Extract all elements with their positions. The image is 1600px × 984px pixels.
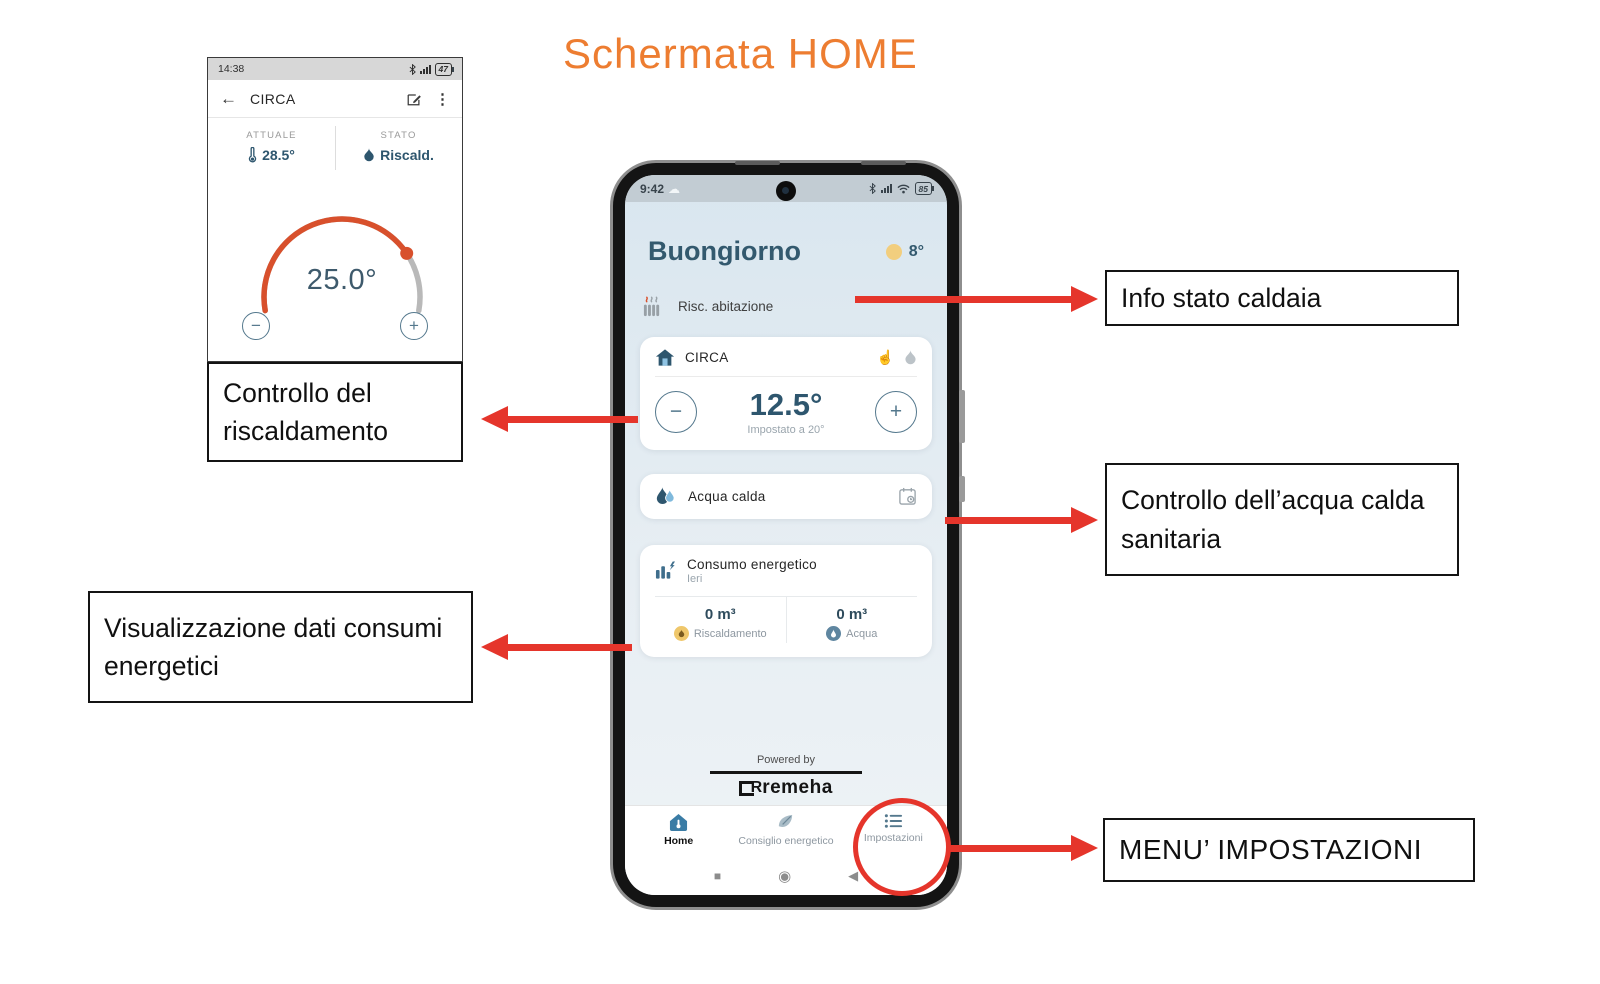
energy-water-cell: 0 m³ Acqua (786, 597, 918, 643)
flame-icon (363, 148, 375, 162)
zone-setpoint-note: Impostato a 20° (747, 424, 824, 436)
heating-consumption-label: Riscaldamento (694, 628, 767, 640)
callout-controllo-riscaldamento: Controllo del riscaldamento (207, 362, 463, 462)
current-temp-block: ATTUALE 28.5° (208, 130, 335, 163)
current-temp-value: 28.5° (262, 147, 295, 163)
callout-visualizzazione-consumi: Visualizzazione dati consumi energetici (88, 591, 473, 703)
remeha-logo: R remeha (710, 771, 862, 799)
battery-icon: 85 (915, 182, 932, 195)
heating-badge-icon (674, 626, 689, 641)
mini-status-bar: 14:38 47 (208, 58, 462, 80)
powered-by-label: Powered by (640, 754, 932, 766)
mini-header: ← CIRCA ⋮ (208, 80, 462, 118)
battery-icon: 47 (435, 63, 452, 76)
edit-icon[interactable] (406, 91, 422, 107)
nav-home[interactable]: Home (625, 813, 732, 857)
phone-mockup: 9:42 ☁ 85 Buongiorno 8° (610, 160, 962, 910)
android-back-button[interactable]: ◀ (848, 868, 858, 884)
boiler-status-label: Risc. abitazione (678, 299, 773, 314)
thermostat-detail-screenshot: 14:38 47 ← CIRCA ⋮ ATTUALE 28.5° (207, 57, 463, 362)
dial-setpoint-value: 25.0° (252, 264, 432, 297)
water-drops-icon (655, 486, 677, 507)
zone-name: CIRCA (685, 350, 729, 365)
water-consumption-label: Acqua (846, 628, 877, 640)
signal-icon (881, 184, 892, 193)
current-label: ATTUALE (208, 130, 335, 141)
decrease-temp-button[interactable]: − (655, 391, 697, 433)
android-recents-button[interactable]: ■ (714, 869, 721, 883)
arrow-menu-impostazioni (948, 835, 1098, 861)
page-title: Schermata HOME (563, 30, 918, 78)
temperature-dial[interactable] (252, 205, 432, 317)
energy-heating-cell: 0 m³ Riscaldamento (655, 597, 786, 643)
nav-energy-advice[interactable]: Consiglio energetico (732, 813, 839, 857)
mini-info-row: ATTUALE 28.5° STATO Riscald. (208, 118, 462, 169)
volume-button (959, 390, 965, 443)
status-time: 9:42 (640, 182, 664, 196)
weather-widget: 8° (886, 243, 924, 261)
bluetooth-icon (409, 64, 416, 75)
hot-water-card[interactable]: Acqua calda (640, 474, 932, 519)
state-block: STATO Riscald. (335, 130, 462, 163)
cloud-icon: ☁ (668, 182, 680, 196)
state-value: Riscald. (380, 147, 434, 163)
callout-controllo-acqua: Controllo dell’acqua calda sanitaria (1105, 463, 1459, 576)
hot-water-label: Acqua calda (688, 489, 766, 504)
remeha-logo-mark: R (739, 781, 754, 796)
sun-icon (886, 244, 902, 260)
outdoor-temp: 8° (909, 243, 924, 261)
divider (655, 376, 917, 377)
energy-card[interactable]: Consumo energetico Ieri 0 m³ Riscaldamen (640, 545, 932, 657)
divider (335, 126, 336, 170)
mini-status-time: 14:38 (218, 63, 244, 75)
energy-title: Consumo energetico (687, 557, 817, 572)
antenna-line (861, 161, 906, 165)
water-badge-icon (826, 626, 841, 641)
flame-icon[interactable] (904, 350, 917, 365)
nav-energy-advice-label: Consiglio energetico (738, 835, 833, 847)
energy-chart-icon (655, 561, 676, 581)
radiator-icon (642, 295, 665, 317)
callout-menu-impostazioni: MENU’ IMPOSTAZIONI (1103, 818, 1475, 882)
heating-consumption-value: 0 m³ (655, 606, 786, 623)
water-consumption-value: 0 m³ (787, 606, 918, 623)
thermometer-icon (248, 147, 257, 163)
phone-screen: 9:42 ☁ 85 Buongiorno 8° (625, 175, 947, 895)
zone-temperature: 12.5° (747, 387, 824, 423)
schedule-calendar-icon[interactable] (898, 487, 917, 506)
house-icon (655, 348, 675, 367)
wifi-icon (897, 184, 910, 194)
mini-screen-title: CIRCA (250, 91, 296, 107)
power-button (959, 476, 965, 502)
dial-handle[interactable] (400, 247, 413, 260)
menu-kebab-icon[interactable]: ⋮ (435, 90, 450, 108)
camera-punch-hole (776, 181, 796, 201)
arrow-acqua-calda (945, 507, 1098, 533)
greeting: Buongiorno (648, 236, 801, 267)
slide: Schermata HOME 14:38 47 ← CIRCA ⋮ ATTUAL… (0, 0, 1600, 984)
decrease-temp-button[interactable]: − (242, 312, 270, 340)
signal-icon (420, 65, 431, 74)
android-home-button[interactable]: ◉ (778, 867, 791, 885)
arrow-consumi-energetici (481, 634, 632, 660)
increase-temp-button[interactable]: + (400, 312, 428, 340)
arrow-controllo-riscaldamento (481, 406, 638, 432)
powered-by-block: Powered by R remeha (640, 754, 932, 799)
home-nav-icon (669, 813, 688, 832)
state-label: STATO (335, 130, 462, 141)
back-arrow-icon[interactable]: ← (220, 89, 237, 109)
antenna-line (735, 161, 780, 165)
settings-highlight-circle (853, 798, 951, 896)
increase-temp-button[interactable]: + (875, 391, 917, 433)
callout-info-stato-caldaia: Info stato caldaia (1105, 270, 1459, 326)
manual-mode-icon[interactable]: ☝ (877, 349, 894, 366)
zone-card[interactable]: CIRCA ☝ − 12.5° Impostato a 20° + (640, 337, 932, 450)
arrow-info-stato-caldaia (855, 286, 1098, 312)
bluetooth-icon (869, 183, 876, 194)
energy-subtitle: Ieri (687, 573, 817, 585)
remeha-logo-text: remeha (762, 777, 833, 799)
nav-home-label: Home (664, 835, 693, 847)
leaf-nav-icon (776, 813, 795, 832)
